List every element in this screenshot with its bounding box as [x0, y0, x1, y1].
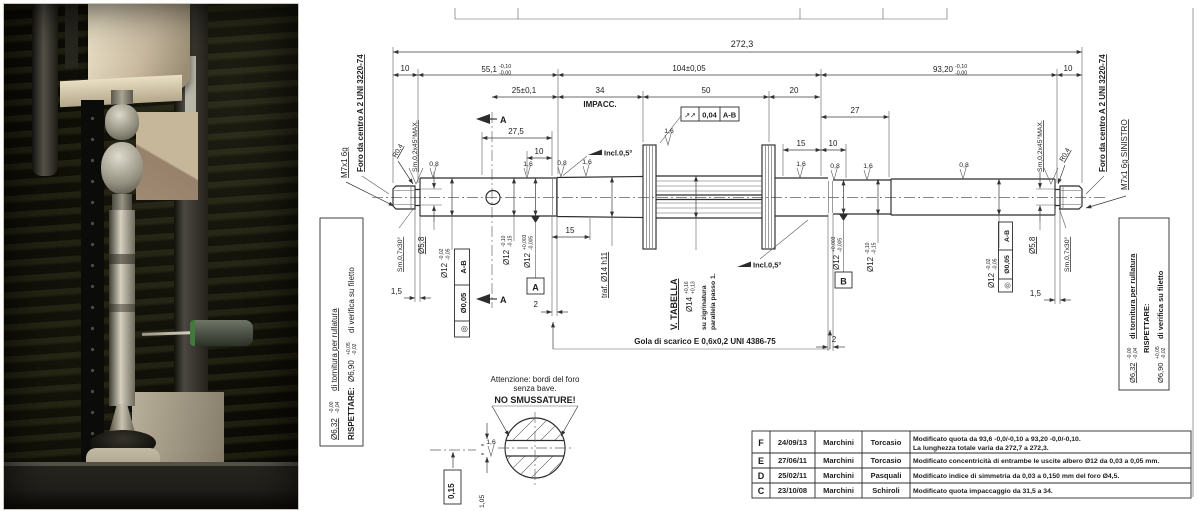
- rev-approved-by: Torcasio: [871, 456, 902, 465]
- section-a-bottom: A: [500, 295, 507, 305]
- incl-note-left: Incl.0,5°: [604, 149, 632, 158]
- rev-description: Modificato concentricità di entrambe le …: [913, 458, 1159, 465]
- dia-12e-dn: -0,15: [872, 242, 878, 254]
- gola-note: Gola di scarico E 0,6x0,2 UNI 4386-75: [553, 322, 830, 349]
- dia-14-up: +0,16: [684, 281, 690, 294]
- dim-25: 25±0,1: [512, 86, 537, 95]
- rev-drawn-by: Marchini: [823, 471, 854, 480]
- note-d632-dn: -0,04: [1133, 347, 1139, 359]
- dia-12d-dn: -0,005: [838, 238, 844, 252]
- roughness-16: 1,6: [664, 128, 674, 135]
- thread-label-left: M7x1 6g: [340, 147, 349, 178]
- roughness-16: 1,6: [796, 161, 806, 168]
- side-note-left: Ø6,32 -0,00 -0,04 di tornitura per rulla…: [320, 218, 363, 446]
- dia-12a-dn: -0,05: [446, 248, 452, 260]
- dia-12d: Ø12: [832, 254, 841, 270]
- rev-drawn-by: Marchini: [823, 456, 854, 465]
- dim-10-left: 10: [401, 64, 410, 73]
- dia-12a-up: -0,02: [439, 248, 445, 260]
- concentricity-frame-right: ◎ Ø0,05 A-B: [999, 222, 1013, 292]
- dia-12c: Ø12: [523, 252, 532, 268]
- note-d690: Ø6,90: [1156, 363, 1165, 383]
- detail-dim-105: 1,05: [479, 495, 486, 508]
- runout-value: 0,04: [702, 111, 717, 120]
- rev-description: Modificato indice di simmetria da 0,03 a…: [913, 473, 1119, 480]
- thread-label-right: M7x1 6g SINISTRO: [1120, 119, 1129, 190]
- roughness-16: 1,6: [582, 159, 592, 166]
- dia-12f: Ø12: [987, 272, 996, 288]
- rev-date: 23/10/08: [778, 486, 807, 495]
- chamfer-45-right: Sm,0,2x45°MAX.: [1036, 120, 1044, 172]
- v-tabella-label: V. TABELLA: [669, 278, 679, 330]
- dim-10-right: 10: [1064, 64, 1073, 73]
- rev-description: Modificato quota impaccaggio da 31,5 a 3…: [913, 488, 1053, 495]
- datum-b-label: B: [840, 277, 847, 287]
- dia-12b-dn: -0,15: [508, 235, 514, 247]
- note-rullatura: di tornitura per rullatura: [1128, 253, 1137, 339]
- dim-27: 27: [851, 106, 860, 115]
- dim-total: 272,3: [731, 39, 754, 49]
- diameter-labels: Ø12-0,02-0,05 Ø12-0,10-0,15 Ø12+0,003-0,…: [417, 234, 1037, 330]
- centerlines: [372, 112, 1108, 308]
- dim-neck-right: 1,5: [1030, 289, 1042, 298]
- dia-14: Ø14: [685, 296, 694, 312]
- equal-mark: =: [481, 443, 484, 449]
- foro-label-right: Foro da centro A 2 UNI 3220-74: [1098, 54, 1107, 172]
- section-a-top: A: [500, 115, 507, 125]
- note-d632: Ø6,32: [1128, 363, 1137, 383]
- roughness-08: 0,8: [959, 162, 969, 169]
- dia-58-right: Ø5,8: [1028, 236, 1037, 254]
- rev-letter: C: [758, 486, 765, 496]
- conc-value-left: Ø0,05: [459, 293, 468, 313]
- equal-mark: =: [481, 452, 484, 458]
- rev-approved-by: Schiroli: [872, 486, 900, 495]
- note-d632: Ø6,32: [330, 418, 339, 440]
- runout-ref: A-B: [723, 111, 737, 120]
- table-row: F 24/09/13 Marchini Torcasio Modificato …: [758, 436, 1081, 452]
- chamfer-30-left: Sm,0,7x30°: [396, 237, 404, 272]
- note-d690-dn: -0,02: [352, 343, 358, 355]
- conc-value-right: Ø0,05: [1004, 255, 1011, 274]
- dia-12f-up: -0,02: [986, 258, 992, 270]
- note-d632-dn: -0,04: [335, 401, 341, 413]
- dim-932-tol-dn: -0,00: [955, 71, 967, 77]
- dim-10-small-left: 10: [535, 147, 544, 156]
- table-row: E 27/06/11 Marchini Torcasio Modificato …: [758, 456, 1159, 466]
- dim-groove-right: 2: [832, 335, 837, 344]
- rev-letter: D: [758, 471, 765, 481]
- dia-12c-dn: -0,005: [529, 236, 535, 250]
- gola-label: Gola di scarico E 0,6x0,2 UNI 4386-75: [634, 337, 776, 346]
- dim-15-right: 15: [797, 139, 806, 148]
- detail-warning-1: Attenzione: bordi del foro: [491, 375, 580, 384]
- dia-12b: Ø12: [502, 249, 511, 265]
- runout-icon: ↗↗: [684, 113, 695, 120]
- zigrinatura-label-2: parallela passo 1.: [710, 273, 717, 330]
- machine-photo: [3, 3, 299, 510]
- rev-approved-by: Pasquali: [871, 471, 902, 480]
- zigrinatura-label-1: su zigrinatura: [701, 285, 708, 330]
- rev-date: 24/09/13: [778, 438, 807, 447]
- dim-20: 20: [790, 86, 799, 95]
- dia-12e: Ø12: [866, 256, 875, 272]
- dia-12c-up: +0,003: [522, 234, 528, 250]
- chamfer-30-right: Sm,0,7x30°: [1063, 237, 1071, 272]
- dim-34: 34: [596, 86, 605, 95]
- revision-table: F 24/09/13 Marchini Torcasio Modificato …: [752, 431, 1191, 498]
- detail-warning-3: NO SMUSSATURE!: [494, 395, 575, 405]
- photo-vignette: [4, 4, 298, 509]
- note-filetto: di verifica su filetto: [347, 267, 356, 333]
- dim-275: 27,5: [508, 127, 524, 136]
- gdnt-frames: ◎ Ø0,05 A-B ◎ Ø0,05 A-B ↗↗ 0,04 A-B: [455, 107, 1013, 337]
- traf-label: traf. Ø14 h11: [600, 251, 609, 298]
- dia-12f-dn: -0,05: [993, 258, 999, 270]
- conc-ref-left: A-B: [459, 260, 468, 274]
- roughness-08: 0,8: [429, 161, 439, 168]
- side-note-right: Ø6,32 -0,00 -0,04 di tornitura per rulla…: [1119, 218, 1169, 390]
- dim-551-tol-dn: -0,00: [499, 71, 511, 77]
- dim-groove-left: 2: [534, 300, 539, 309]
- impacc-label: IMPACC.: [583, 100, 616, 109]
- dim-neck-left: 1,5: [391, 287, 403, 296]
- datum-a-label: A: [532, 283, 539, 293]
- rev-letter: F: [758, 438, 764, 448]
- detail-dim-015: 0,15: [447, 483, 456, 499]
- concentricity-icon: ◎: [460, 325, 469, 332]
- rev-approved-by: Torcasio: [871, 438, 902, 447]
- dim-50: 50: [702, 86, 711, 95]
- rev-drawn-by: Marchini: [823, 438, 854, 447]
- dia-12e-up: -0,10: [865, 242, 871, 254]
- dia-12d-up: +0,003: [831, 236, 837, 252]
- note-rispettare: RISPETTARE:: [347, 387, 356, 440]
- dim-15-left: 15: [566, 226, 575, 235]
- roughness-08: 0,8: [830, 163, 840, 170]
- roughness-16: 1,6: [863, 163, 873, 170]
- dia-14-dn: +0,13: [691, 281, 697, 294]
- rev-letter: E: [758, 456, 764, 466]
- dim-932-tol-up: -0,10: [955, 64, 967, 70]
- dimension-texts: 272,3 10 55,1 -0,10 -0,00 104±0,05 93,20…: [391, 39, 1073, 344]
- concentricity-icon: ◎: [1003, 282, 1012, 289]
- note-d690-dn: -0,02: [1161, 347, 1167, 359]
- roughness-16: 1,6: [486, 439, 496, 446]
- dia-58-left: Ø5,8: [417, 236, 426, 254]
- dim-551: 55,1: [481, 65, 497, 74]
- dim-551-tol-up: -0,10: [499, 64, 511, 70]
- note-filetto: di verifica su filetto: [1156, 270, 1165, 339]
- rev-date: 27/06/11: [778, 456, 807, 465]
- note-rullatura: di tornitura per rullatura: [330, 308, 339, 391]
- roughness-16: 1,6: [523, 161, 533, 168]
- dim-104: 104±0,05: [672, 64, 706, 73]
- note-rispettare: RISPETTARE:: [1142, 304, 1151, 353]
- hole-detail-view: Attenzione: bordi del foro senza bave. N…: [430, 375, 580, 508]
- dim-932: 93,20: [933, 65, 954, 74]
- foro-label-left: Foro da centro A 2 UNI 3220-74: [356, 54, 365, 172]
- incl-note-right: Incl.0,5°: [753, 261, 781, 270]
- rev-drawn-by: Marchini: [823, 486, 854, 495]
- rev-date: 25/02/11: [778, 471, 807, 480]
- dia-12b-up: -0,10: [501, 235, 507, 247]
- note-d690: Ø6,90: [347, 360, 356, 382]
- conc-ref-right: A-B: [1004, 230, 1011, 242]
- section-a-markers: A A: [476, 114, 507, 305]
- concentricity-frame-left: ◎ Ø0,05 A-B: [455, 249, 470, 337]
- rev-description: La lunghezza totale varia da 272,7 a 272…: [913, 445, 1049, 452]
- detail-warning-2: senza bave.: [513, 384, 556, 393]
- table-row: D 25/02/11 Marchini Pasquali Modificato …: [758, 471, 1120, 481]
- chamfer-45-left: Sm,0,2x45°MAX.: [411, 120, 419, 172]
- shaft-outline: [393, 145, 1082, 249]
- shaft-technical-drawing: 272,3 10 55,1 -0,10 -0,00 104±0,05 93,20…: [300, 0, 1200, 511]
- radius-label-right: R0,4: [1059, 147, 1072, 163]
- radius-label-left: R0,4: [392, 143, 405, 159]
- runout-frame: ↗↗ 0,04 A-B: [660, 107, 739, 143]
- dim-10-small-right: 10: [829, 139, 838, 148]
- screenshot: 272,3 10 55,1 -0,10 -0,00 104±0,05 93,20…: [0, 0, 1200, 511]
- rev-description: Modificato quota da 93,6 -0,0/-0,10 a 93…: [913, 436, 1081, 443]
- table-row: C 23/10/08 Marchini Schiroli Modificato …: [758, 486, 1053, 496]
- roughness-08: 0,8: [557, 160, 567, 167]
- dia-12a: Ø12: [440, 262, 449, 278]
